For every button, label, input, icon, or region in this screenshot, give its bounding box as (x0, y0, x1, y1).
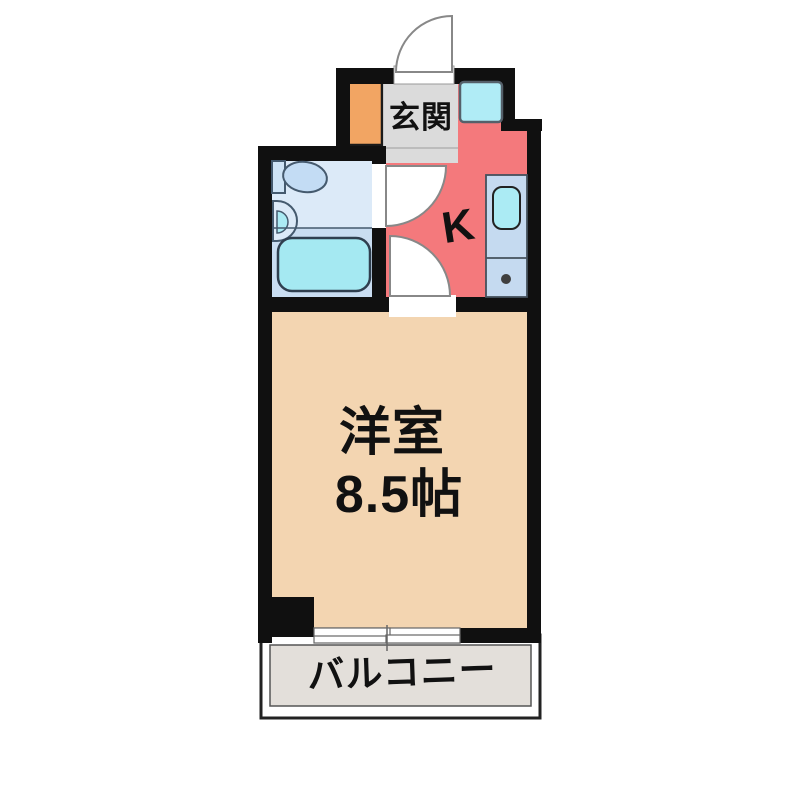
window-sash-right (386, 635, 460, 643)
room-door-opening (389, 295, 456, 317)
outside-corner-mask (513, 40, 603, 119)
kitchen-sink (493, 187, 520, 229)
wall-right (527, 119, 541, 643)
wall-bottom-right (460, 628, 541, 643)
floor-plan: 玄関 K 洋室 8.5帖 バルコニー (0, 0, 800, 800)
pillar (258, 597, 314, 637)
washing-machine-space (460, 82, 502, 122)
window-sash-left (314, 628, 390, 636)
bathroom-door-opening (372, 164, 386, 228)
main-room-name-label: 洋室 (339, 404, 445, 462)
entrance-label: 玄関 (389, 100, 453, 135)
balcony-label: バルコニー (307, 649, 498, 697)
wall-bathroom-top (258, 146, 386, 161)
wall-left (258, 146, 272, 643)
bathtub (278, 238, 370, 291)
stove-burner (501, 274, 511, 284)
entrance-door-arc (396, 16, 452, 72)
shoe-cabinet (348, 80, 382, 145)
main-room-size-label: 8.5帖 (335, 466, 463, 524)
floor-plan-canvas: 玄関 K 洋室 8.5帖 バルコニー (0, 0, 800, 800)
